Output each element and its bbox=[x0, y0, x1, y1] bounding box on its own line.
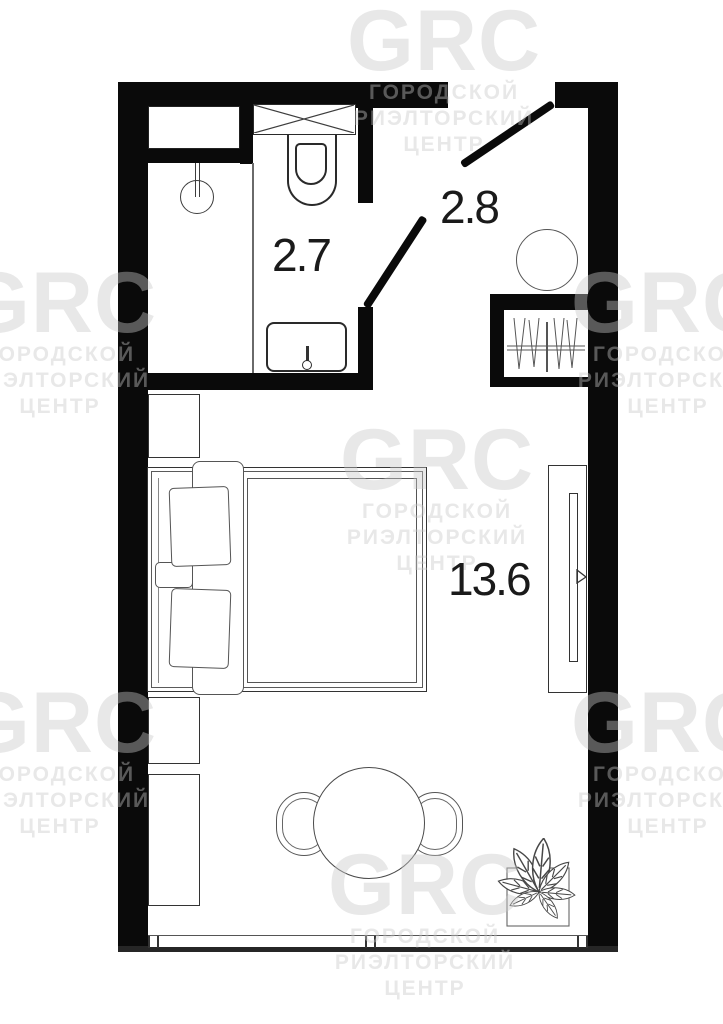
watermark-line: ЦЕНТР bbox=[285, 976, 565, 1002]
round-table bbox=[313, 767, 425, 879]
window-mullion bbox=[365, 936, 376, 948]
wardrobe-interior bbox=[504, 310, 588, 377]
window bbox=[148, 935, 588, 947]
hallway-area-label: 2.8 bbox=[440, 184, 498, 230]
watermark-line: ЦЕНТР bbox=[528, 814, 723, 840]
floor-plan: 2.7 2.8 13.6 GRC ГОРОДСКОЙ РИЭЛТОРСКИЙ Ц… bbox=[0, 0, 723, 1024]
nightstand-bottom bbox=[148, 697, 200, 764]
faucet-knob bbox=[302, 360, 312, 370]
wall-bathroom-south bbox=[148, 373, 373, 390]
watermark-line: РИЭЛТОРСКИЙ bbox=[528, 788, 723, 814]
wall-left bbox=[118, 82, 148, 952]
watermark-line: ГОРОДСКОЙ bbox=[0, 342, 200, 368]
wall-right bbox=[588, 82, 618, 948]
shower-partition-line bbox=[252, 163, 254, 373]
pillow bbox=[169, 486, 232, 567]
cistern-shelf-crosshatch bbox=[253, 104, 356, 135]
living-room-area-label: 13.6 bbox=[448, 556, 530, 602]
window-mullion bbox=[577, 936, 588, 948]
stool-icon bbox=[516, 229, 578, 291]
watermark-line: ГОРОДСКОЙ bbox=[528, 762, 723, 788]
nightstand-top bbox=[148, 394, 200, 458]
shower-drain-icon bbox=[180, 180, 214, 214]
bathroom-door-leaf bbox=[363, 215, 428, 309]
wall-wardrobe-top-bar bbox=[504, 294, 588, 310]
pillow bbox=[169, 588, 232, 669]
watermark-line: РИЭЛТОРСКИЙ bbox=[285, 950, 565, 976]
wall-wardrobe-bottom-bar bbox=[504, 377, 588, 387]
hangers-icon bbox=[504, 310, 588, 377]
watermark: GRC ГОРОДСКОЙ РИЭЛТОРСКИЙ ЦЕНТР bbox=[528, 684, 723, 840]
watermark-grc-logo: GRC bbox=[528, 684, 723, 762]
wall-niche-bottom-bar bbox=[148, 149, 253, 163]
wall-bathroom-east-upper bbox=[358, 106, 373, 203]
bed-duvet bbox=[247, 478, 417, 683]
potted-plant-icon bbox=[487, 838, 589, 938]
desk bbox=[148, 774, 200, 906]
crosshatch-x-icon bbox=[254, 105, 354, 133]
watermark-line: ЦЕНТР bbox=[304, 132, 584, 158]
entrance-door-leaf bbox=[460, 100, 556, 168]
watermark-line: ЦЕНТР bbox=[528, 394, 723, 420]
tv-mount-bracket bbox=[575, 569, 588, 584]
wall-wardrobe-west-post bbox=[490, 294, 504, 387]
toilet-bowl-inner bbox=[295, 143, 327, 185]
watermark-grc-logo: GRC bbox=[0, 264, 200, 342]
bathroom-area-label: 2.7 bbox=[272, 232, 330, 278]
ventilation-niche bbox=[148, 106, 240, 149]
watermark-grc-logo: GRC bbox=[304, 2, 584, 80]
window-mullion bbox=[148, 936, 159, 948]
